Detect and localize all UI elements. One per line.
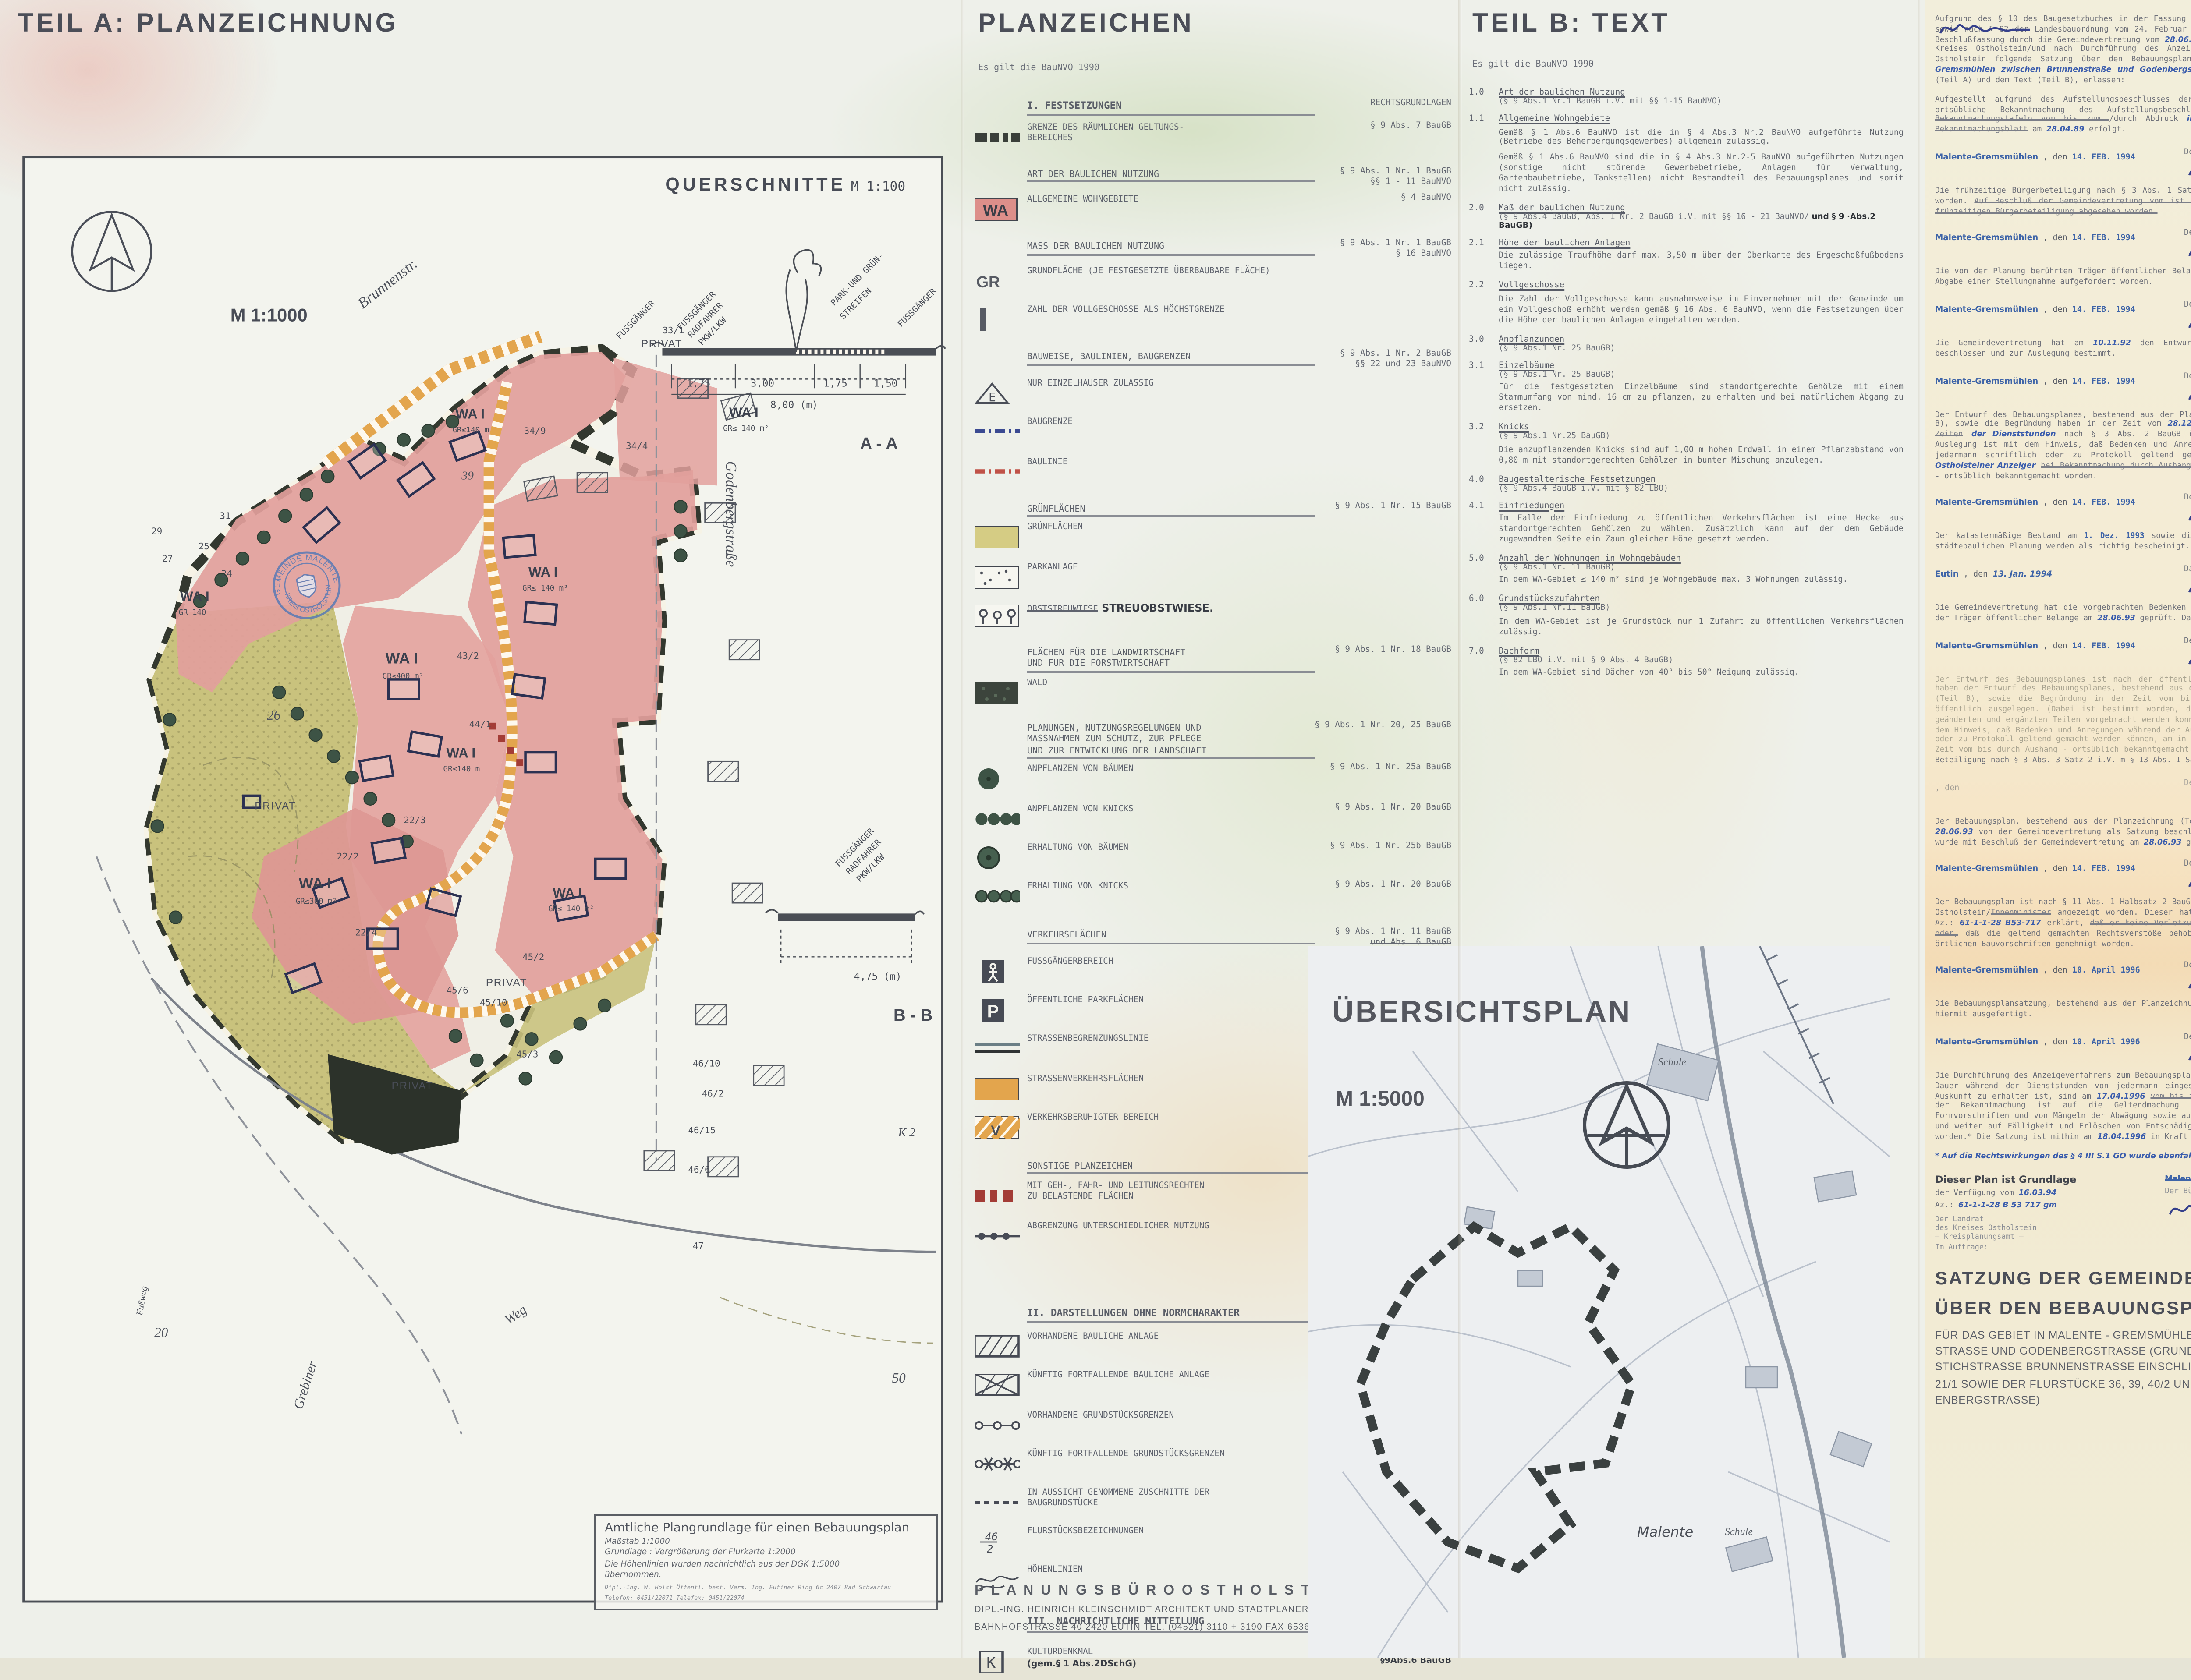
legal-reference: § 9 Abs. 1 Nr. 20 BauGB xyxy=(1315,881,1451,892)
text-section-3.1: 3.1Einzelbäume(§ 9 Abs.1 Nr. 25 BauGB)Fü… xyxy=(1469,362,1904,416)
section-heading: Einzelbäume xyxy=(1499,362,1904,371)
tree-symbol xyxy=(501,1015,514,1027)
section-heading: Höhe der baulichen Anlagen xyxy=(1499,240,1904,248)
legend-heading: FLÄCHEN FÜR DIE LANDWIRTSCHAFT UND FÜR D… xyxy=(975,646,1451,672)
rbldg-icon xyxy=(975,1374,1020,1397)
legend-label: BAUWEISE, BAULINIEN, BAUGRENZEN xyxy=(1027,351,1315,366)
baulinie-symbol xyxy=(975,456,1027,490)
municipal-seal-stamp: GEMEINDE MALENTE KREIS OSTHOLSTEIN xyxy=(265,544,348,627)
tree-symbol xyxy=(257,531,270,544)
park2-symbol: P xyxy=(975,996,1027,1029)
svg-text:46: 46 xyxy=(985,1531,998,1543)
building-envelope xyxy=(512,674,545,698)
legend-item: PARKANLAGE xyxy=(975,562,1451,595)
roman1-symbol xyxy=(975,305,1027,339)
signature xyxy=(2184,1043,2191,1067)
map-label: 22/2 xyxy=(337,851,359,862)
map-label: 25 xyxy=(199,541,209,552)
building-envelope xyxy=(372,838,405,863)
knick1-symbol xyxy=(975,804,1027,837)
legend-heading: I. FESTSETZUNGENRECHTSGRUNDLAGEN xyxy=(975,100,1451,117)
knick2-symbol xyxy=(975,881,1027,915)
ebldg-symbol xyxy=(975,1332,1027,1365)
text-section-5.0: 5.0Anzahl der Wohnungen in Wohngebäuden(… xyxy=(1469,555,1904,588)
place-date: Malente-Gremsmühlen , den 14. FEB. 1994 xyxy=(1935,861,2135,891)
official-title: Der Bürgermeister xyxy=(2184,963,2191,972)
legend-label: VORHANDENE BAULICHE ANLAGE xyxy=(1027,1332,1315,1344)
map-label: 43/2 xyxy=(457,651,479,661)
map-label: 20 xyxy=(154,1325,168,1340)
legend-label: SONSTIGE PLANZEICHEN xyxy=(1027,1160,1315,1175)
uebersichtsplan-panel: Schule Schule ÜBERSICHTSPLAN M 1:5000 Ma… xyxy=(1308,946,1890,1658)
legend-label: MIT GEH-, FAHR- UND LEITUNGSRECHTEN ZU B… xyxy=(1027,1182,1315,1205)
official-signature: Der Bürgermeister GEMEINDE MALENTE KREIS… xyxy=(2184,637,2191,667)
official-signature: Der Bürgermeister GEMEINDE MALENTE KREIS… xyxy=(2184,301,2191,331)
legend-label: STRASSENVERKEHRSFLÄCHEN xyxy=(1027,1073,1315,1086)
map-label: PRIVAT xyxy=(641,338,683,350)
trie-icon: E xyxy=(975,382,1020,405)
tree-symbol xyxy=(574,1017,586,1030)
official-signature: Der Bürgermeister GEMEINDE MALENTE KREIS… xyxy=(2184,1034,2191,1064)
vcalm-icon: V xyxy=(975,1116,1020,1139)
tree-symbol xyxy=(291,707,304,720)
wa-symbol: WA xyxy=(975,194,1027,227)
ped-symbol xyxy=(975,957,1027,990)
text-section-1.0: 1.0Art der baulichen Nutzung(§ 9 Abs.1 N… xyxy=(1469,89,1904,107)
vcalm-symbol: V xyxy=(975,1112,1027,1146)
signature-row: Malente-Gremsmühlen , den 14. FEB. 1994D… xyxy=(1935,149,2191,179)
legend-label: FLURSTÜCKSBEZEICHNUNGEN xyxy=(1027,1526,1315,1539)
tree-symbol xyxy=(327,750,340,763)
satzung-line1: SATZUNG DER GEMEINDE MALENTE xyxy=(1935,1266,2191,1294)
legal-reference: § 9 Abs. 1 Nr. 18 BauGB xyxy=(1315,646,1451,657)
tree-symbol xyxy=(422,424,434,437)
signature-row: Malente-Gremsmühlen , den 14. FEB. 1994D… xyxy=(1935,637,2191,667)
map-label: 26 xyxy=(267,707,281,723)
wald-icon xyxy=(975,682,1020,704)
map-label: GR 140 xyxy=(179,608,206,617)
map-label: 1,75 xyxy=(823,378,847,389)
official-title: Der Bürgermeister xyxy=(2184,149,2191,158)
official-signature: Der Bürgermeister GEMEINDE MALENTE KREIS… xyxy=(2184,861,2191,891)
legend-label: IN AUSSICHT GENOMMENE ZUSCHNITTE DER BAU… xyxy=(1027,1488,1315,1510)
map-label: PRIVAT xyxy=(255,800,296,812)
legend-label: II. DARSTELLUNGEN OHNE NORMCHARAKTER xyxy=(1027,1307,1315,1323)
plan-grundlage-note: Dieser Plan ist Grundlage xyxy=(1935,1175,2165,1185)
legend-label: GRENZE DES RÄUMLICHEN GELTUNGS- BEREICHE… xyxy=(1027,122,1315,145)
text-section-3.0: 3.0Anpflanzungen(§ 9 Abs.1 Nr. 25 BauGB) xyxy=(1469,336,1904,354)
tree-symbol xyxy=(674,500,687,513)
section-number: 3.0 xyxy=(1469,336,1499,354)
tree-symbol xyxy=(163,713,176,726)
section-heading: Einfriedungen xyxy=(1499,502,1904,511)
tree-symbol xyxy=(300,488,313,501)
tree2-icon xyxy=(975,846,1020,869)
legend-label: PARKANLAGE xyxy=(1027,562,1315,574)
legend-item: WAALLGEMEINE WOHNGEBIETE§ 4 BauNVO xyxy=(975,194,1451,227)
section-number: 3.1 xyxy=(1469,362,1499,416)
section-heading: Baugestalterische Festsetzungen xyxy=(1499,476,1904,485)
map-label: M 1:1000 xyxy=(230,304,308,325)
surveyor-line: Dipl.-Ing. W. Holst Öffentl. best. Verm.… xyxy=(605,1585,927,1592)
map-label: GR≤140 m xyxy=(443,765,480,774)
section-paragraph: In dem WA-Gebiet ≤ 140 m² sind je Wohnge… xyxy=(1499,577,1904,588)
legend-label: KULTURDENKMAL(gem.§ 1 Abs.2DSchG) xyxy=(1027,1647,1315,1670)
sline-symbol xyxy=(975,1034,1027,1068)
section-paragraph: Gemäß § 1 Abs.6 BauNVO ist die in § 4 Ab… xyxy=(1499,129,1904,150)
text-section-3.2: 3.2Knicks(§ 9 Abs.1 Nr.25 BauGB)Die anzu… xyxy=(1469,424,1904,467)
official-title: Der Bürgermeister xyxy=(2184,637,2191,646)
legend-item: ANPFLANZEN VON KNICKS§ 9 Abs. 1 Nr. 20 B… xyxy=(975,804,1451,837)
map-label: QUERSCHNITTE xyxy=(665,174,846,195)
map-label: 27 xyxy=(162,553,173,564)
baulinie-icon xyxy=(975,460,1020,483)
plangrundlage-title: Amtliche Plangrundlage für einen Bebauun… xyxy=(605,1521,927,1535)
map-label: Godenbergstraße xyxy=(723,461,740,567)
legend-label: I. FESTSETZUNGEN xyxy=(1027,100,1315,117)
map-label: 1,75 xyxy=(687,378,710,389)
park2-icon: P xyxy=(975,999,1020,1022)
map-label: WA I xyxy=(180,589,209,604)
official-signature: Der Bürgermeister GEMEINDE MALENTE KREIS… xyxy=(2184,149,2191,179)
section-paragraph: Die anzupflanzenden Knicks sind auf 1,00… xyxy=(1499,446,1904,467)
map-label: 1,50 xyxy=(874,378,897,389)
ped-icon xyxy=(975,960,1020,983)
official-title: Der Bürgermeister xyxy=(2184,373,2191,382)
satzung-title-block: SATZUNG DER GEMEINDE MALENTE ÜBER DEN BE… xyxy=(1935,1266,2191,1409)
legend-label: ERHALTUNG VON BÄUMEN xyxy=(1027,842,1315,855)
map-label: 46/10 xyxy=(693,1058,720,1068)
section-number: 1.1 xyxy=(1469,116,1499,196)
text-section-2.0: 2.0Maß der baulichen Nutzung(§ 9 Abs.4 B… xyxy=(1469,205,1904,231)
legend-item: BAUGRENZE xyxy=(975,417,1451,451)
signature xyxy=(2165,1196,2191,1220)
legend-label: ABGRENZUNG UNTERSCHIEDLICHER NUTZUNG xyxy=(1027,1221,1315,1233)
section-paragraph: Gemäß § 1 Abs.6 BauNVO sind die in § 4 A… xyxy=(1499,154,1904,196)
baunvo-note: Es gilt die BauNVO 1990 xyxy=(978,63,1099,74)
place-date: , den xyxy=(1935,780,1959,810)
kbox-symbol: K xyxy=(975,1647,1027,1680)
map-label: WA I xyxy=(386,650,418,667)
section-reference: (§ 9 Abs.1 Nr.11 BauGB) xyxy=(1499,605,1904,614)
svg-text:WA: WA xyxy=(983,201,1008,219)
tree-symbol xyxy=(550,1051,562,1064)
procedural-paragraph: Die Bebauungsplansatzung, bestehend aus … xyxy=(1935,1001,2191,1022)
tree-symbol xyxy=(236,552,249,565)
office-name: P L A N U N G S B Ü R O O S T H O L S T … xyxy=(975,1582,1357,1598)
legend-item: WALD xyxy=(975,678,1451,711)
legend-item: ANPFLANZEN VON BÄUMEN§ 9 Abs. 1 Nr. 25a … xyxy=(975,765,1451,798)
map-label: 8,00 (m) xyxy=(770,399,818,410)
uebersichtsplan-scale: M 1:5000 xyxy=(1336,1086,1425,1111)
procedural-paragraph: Der Entwurf des Bebauungsplanes, bestehe… xyxy=(1935,411,2191,483)
plan-map-drawing: M 1:1000QUERSCHNITTEM 1:100FUSSGÄNGERFUS… xyxy=(5,147,948,1619)
office-address: BAHNHOFSTRASSE 40 2420 EUTIN TEL. (04521… xyxy=(975,1623,1357,1633)
legend-item: ERHALTUNG VON KNICKS§ 9 Abs. 1 Nr. 20 Ba… xyxy=(975,881,1451,915)
rbldg-symbol xyxy=(975,1371,1027,1404)
legend-item: GRGRUNDFLÄCHE (JE FESTGESETZTE ÜBERBAUBA… xyxy=(975,266,1451,300)
section-reference: (§ 9 Abs.1 Nr.1 BauGB i.V. mit §§ 1-15 B… xyxy=(1499,98,1904,107)
tree-symbol xyxy=(525,1033,538,1045)
existing-building xyxy=(729,640,759,660)
map-label: 34/9 xyxy=(524,425,546,436)
map-label: GR≤ 140 m² xyxy=(548,905,594,913)
legend-label: ZAHL DER VOLLGESCHOSSE ALS HÖCHSTGRENZE xyxy=(1027,305,1315,318)
legend-heading: ART DER BAULICHEN NUTZUNG§ 9 Abs. 1 Nr. … xyxy=(975,168,1451,189)
map-label: M 1:100 xyxy=(851,179,905,194)
section-heading: Vollgeschosse xyxy=(1499,283,1904,291)
town-label: Malente xyxy=(1637,1524,1693,1540)
legal-reference: § 9 Abs. 1 Nr. 25b BauGB xyxy=(1315,842,1451,853)
legal-reference: § 4 BauNVO xyxy=(1315,194,1451,205)
map-label: 24 xyxy=(221,569,232,579)
roman1-icon xyxy=(975,309,1020,332)
map-label: 4,75 (m) xyxy=(854,971,902,982)
section-heading: Allgemeine Wohngebiete xyxy=(1499,116,1904,124)
wald-symbol xyxy=(975,678,1027,711)
teil-b-title: TEIL B: TEXT xyxy=(1472,9,1670,39)
map-label: 33/1 xyxy=(662,325,684,336)
signature-row: Malente-Gremsmühlen , den 14. FEB. 1994D… xyxy=(1935,230,2191,260)
section-reference: (§ 9 Abs.4 BauGB i.V. mit § 82 LBO) xyxy=(1499,485,1904,493)
section-reference: (§ 9 Abs.4 BauGB, Abs. 1 Nr. 2 BauGB i.V… xyxy=(1499,213,1904,231)
rights-symbol xyxy=(975,1182,1027,1215)
legend-label: FLÄCHEN FÜR DIE LANDWIRTSCHAFT UND FÜR D… xyxy=(1027,646,1315,672)
svg-text:Schule: Schule xyxy=(1725,1526,1753,1538)
place-date: Malente-Gremsmühlen , den 14. FEB. 1994 xyxy=(1935,637,2135,667)
map-label: WA I xyxy=(729,405,758,420)
legend-label: GRUNDFLÄCHE (JE FESTGESETZTE ÜBERBAUBARE… xyxy=(1027,266,1315,279)
section-number: 4.1 xyxy=(1469,502,1499,547)
tree1-icon xyxy=(975,768,1020,791)
legend-item: BAULINIE xyxy=(975,456,1451,490)
map-label: 45/3 xyxy=(516,1049,538,1059)
fold-crease xyxy=(1918,0,1921,1658)
legal-reference: § 9 Abs. 7 BauGB xyxy=(1315,122,1451,133)
place-date: Malente-Gremsmühlen , den 10. April 1996 xyxy=(1935,963,2140,993)
procedural-paragraph: Die Gemeindevertretung hat am 10.11.92 d… xyxy=(1935,340,2191,361)
landrat-block: Dieser Plan ist Grundlage der Verfügung … xyxy=(1935,1175,2191,1252)
existing-building xyxy=(708,761,738,781)
signature xyxy=(2184,503,2191,528)
legend-item: OBSTSTREUWIESE STREUOBSTWIESE. xyxy=(975,601,1451,634)
map-label: GR≤300 m² xyxy=(296,897,337,906)
park-symbol xyxy=(975,562,1027,595)
signature xyxy=(1935,16,2037,40)
tree-symbol xyxy=(382,813,395,826)
section-heading: Knicks xyxy=(1499,424,1904,433)
procedural-paragraph: Der Entwurf des Bebauungsplanes ist nach… xyxy=(1935,676,2191,767)
map-label: GR≤400 m² xyxy=(383,672,424,681)
text-section-7.0: 7.0Dachform(§ 82 LBO i.V. mit § 9 Abs. 4… xyxy=(1469,648,1904,680)
signature xyxy=(2184,575,2191,599)
existing-building xyxy=(708,1157,738,1177)
municipal-seal-stamp: GEMEINDE MALENTE KREIS OSTHOLSTEIN xyxy=(265,544,348,627)
building-envelope xyxy=(503,535,535,558)
pline-symbol xyxy=(975,1410,1027,1443)
map-label: 39 xyxy=(461,469,474,482)
teil-a-title: TEIL A: PLANZEICHNUNG xyxy=(18,9,398,39)
legal-reference: § 9 Abs. 1 Nr. 2 BauGB §§ 22 und 23 BauN… xyxy=(1315,351,1451,372)
tree-symbol xyxy=(449,1029,462,1042)
section-number: 4.0 xyxy=(1469,476,1499,493)
tree-symbol xyxy=(519,1072,532,1085)
procedural-paragraph: Die Durchführung des Anzeigeverfahrens z… xyxy=(1935,1072,2191,1144)
signature-row: Malente-Gremsmühlen , den 14. FEB. 1994D… xyxy=(1935,301,2191,331)
fold-crease xyxy=(961,0,964,1658)
tree-symbol xyxy=(674,525,687,538)
procedural-paragraph: Die frühzeitige Bürgerbeteiligung nach §… xyxy=(1935,187,2191,218)
signature xyxy=(2184,382,2191,406)
tree-symbol xyxy=(151,820,164,832)
text-section-4.1: 4.1EinfriedungenIm Falle der Einfriedung… xyxy=(1469,502,1904,547)
knick1-icon xyxy=(975,807,1020,830)
map-label: 45/6 xyxy=(447,985,468,996)
map-label: WA I xyxy=(447,746,475,761)
map-label: WA I xyxy=(455,407,484,422)
existing-building xyxy=(644,1151,674,1171)
signature-row: Malente-Gremsmühlen , den 14. FEB. 1994D… xyxy=(1935,861,2191,891)
signature-row: Malente-Gremsmühlen , den 14. FEB. 1994D… xyxy=(1935,373,2191,403)
place-date: Malente-Gremsmühlen , den 14. FEB. 1994 xyxy=(1935,230,2135,260)
official-signature: Der Bürgermeister GEMEINDE MALENTE KREIS… xyxy=(2184,963,2191,993)
place-stamp: Malente-Gremsmühlen xyxy=(2165,1175,2191,1184)
plan-map: M 1:1000QUERSCHNITTEM 1:100FUSSGÄNGERFUS… xyxy=(5,147,948,1619)
svg-text:V: V xyxy=(991,1122,1000,1138)
fno-symbol: 462 xyxy=(975,1526,1027,1560)
section-heading: Grundstückszufahrten xyxy=(1499,597,1904,605)
map-label: 29 xyxy=(151,526,162,536)
map-label: 46/15 xyxy=(688,1125,716,1135)
official-signature: Der Bürgermeister GEMEINDE MALENTE KREIS… xyxy=(2184,230,2191,260)
map-label: K 2 xyxy=(897,1126,915,1139)
procedural-notes: Aufgrund des § 10 des Baugesetzbuches in… xyxy=(1935,7,2191,1409)
legend-label: KÜNFTIG FORTFALLENDE GRUNDSTÜCKSGRENZEN xyxy=(1027,1449,1315,1461)
map-label: 31 xyxy=(220,511,230,521)
existing-building xyxy=(754,1066,784,1086)
boundary-symbol xyxy=(975,122,1027,156)
signature-row: Malente-Gremsmühlen , den 10. April 1996… xyxy=(1935,963,2191,993)
plinex-icon xyxy=(975,1452,1020,1475)
section-heading: Maß der baulichen Nutzung xyxy=(1499,205,1904,213)
legend-label: STRASSENBEGRENZUNGSLINIE xyxy=(1027,1034,1315,1047)
satzung-line2: ÜBER DEN BEBAUUNGSPLAN NR. 53 xyxy=(1935,1294,2191,1323)
official-signature: Der Bürgermeister GEMEINDE MALENTE KREIS… xyxy=(2184,373,2191,403)
park-icon xyxy=(975,566,1020,588)
existing-building xyxy=(696,1005,726,1025)
official-title: Das Katasteramt xyxy=(2184,566,2191,575)
section-paragraph: Die zulässige Traufhöhe darf max. 3,50 m… xyxy=(1499,253,1904,274)
tree-symbol xyxy=(364,792,376,805)
dash-symbol xyxy=(975,1488,1027,1521)
building-envelope xyxy=(525,602,557,624)
legal-reference: RECHTSGRUNDLAGEN xyxy=(1315,100,1451,110)
trie-symbol: E xyxy=(975,379,1027,412)
legend-label: KÜNFTIG FORTFALLENDE BAULICHE ANLAGE xyxy=(1027,1371,1315,1383)
plan-sheet: TEIL A: PLANZEICHNUNG xyxy=(0,0,2191,1658)
legend-label: ÖFFENTLICHE PARKFLÄCHEN xyxy=(1027,996,1315,1008)
section-heading: Anzahl der Wohnungen in Wohngebäuden xyxy=(1499,555,1904,564)
place-date: Eutin , den 13. Jan. 1994 xyxy=(1935,566,2052,596)
tree-symbol xyxy=(169,911,182,924)
legend-label: FUSSGÄNGERBEREICH xyxy=(1027,957,1315,969)
signature-row: Malente-Gremsmühlen , den 10. April 1996… xyxy=(1935,1034,2191,1064)
signature xyxy=(2184,646,2191,670)
wa-icon: WA xyxy=(975,198,1020,220)
map-label: GR≤140 m xyxy=(452,426,489,435)
place-date: Malente-Gremsmühlen , den 14. FEB. 1994 xyxy=(1935,149,2135,179)
map-label: PRIVAT xyxy=(486,976,528,988)
legend-label: ANPFLANZEN VON KNICKS xyxy=(1027,804,1315,816)
svg-text:E: E xyxy=(989,390,996,405)
baugrenze-symbol xyxy=(975,417,1027,451)
tree-symbol xyxy=(674,549,687,562)
procedural-paragraph: Der Bebauungsplan ist nach § 11 Abs. 1 H… xyxy=(1935,899,2191,950)
legend-item: ENUR EINZELHÄUSER ZULÄSSIG xyxy=(975,379,1451,412)
plangrundlage-line: Grundlage : Vergrößerung der Flurkarte 1… xyxy=(605,1549,927,1558)
kbox-icon: K xyxy=(975,1650,1020,1673)
map-label: PRIVAT xyxy=(392,1080,433,1092)
legal-reference: § 9 Abs. 1 Nr. 15 BauGB xyxy=(1315,502,1451,513)
svg-text:2: 2 xyxy=(987,1543,993,1553)
map-label: 34/4 xyxy=(626,441,648,451)
az-line: Az.: 61-1-1-28 B 53 717 gm xyxy=(1935,1201,2165,1210)
text-section-4.0: 4.0Baugestalterische Festsetzungen(§ 9 A… xyxy=(1469,476,1904,493)
dash-icon xyxy=(975,1491,1020,1514)
official-title: Der Bürgermeister xyxy=(2184,780,2191,789)
legend-label: ALLGEMEINE WOHNGEBIETE xyxy=(1027,194,1315,206)
surveyor-line: Telefon: 0451/22071 Telefax: 0451/22074 xyxy=(605,1595,927,1602)
ebldg-icon xyxy=(975,1336,1020,1358)
legal-reference: § 9 Abs. 1 Nr. 20, 25 BauGB xyxy=(1315,722,1451,732)
map-label: 22/3 xyxy=(404,815,425,825)
planning-office-footer: P L A N U N G S B Ü R O O S T H O L S T … xyxy=(975,1582,1357,1633)
legend-item: ZAHL DER VOLLGESCHOSSE ALS HÖCHSTGRENZE xyxy=(975,305,1451,339)
signature xyxy=(2184,158,2191,182)
verfuegung-line: der Verfügung vom 16.03.94 xyxy=(1935,1189,2165,1198)
signature xyxy=(2184,870,2191,894)
procedural-paragraph: Aufgestellt aufgrund des Aufstellungsbes… xyxy=(1935,96,2191,137)
plangrundlage-line: übernommen. xyxy=(605,1573,927,1581)
official-signature: Der Bürgermeister GEMEINDE MALENTE KREIS… xyxy=(2184,495,2191,524)
tree-symbol xyxy=(321,470,334,483)
section-heading: Art der baulichen Nutzung xyxy=(1499,89,1904,98)
svg-text:P: P xyxy=(987,1002,999,1022)
legend-heading: MASS DER BAULICHEN NUTZUNG§ 9 Abs. 1 Nr.… xyxy=(975,240,1451,261)
section-paragraph: Für die festgesetzten Einzelbäume sind s… xyxy=(1499,384,1904,416)
section-number: 2.0 xyxy=(1469,205,1499,231)
section-heading: Anpflanzungen xyxy=(1499,336,1904,345)
official-title: Der Bürgermeister xyxy=(2184,861,2191,870)
map-label: A - A xyxy=(860,434,898,453)
building-envelope xyxy=(525,752,556,772)
gr-symbol: GR xyxy=(975,266,1027,300)
legal-reference: § 9 Abs. 1 Nr. 1 BauGB § 16 BauNVO xyxy=(1315,240,1451,261)
legend-label: NUR EINZELHÄUSER ZULÄSSIG xyxy=(1027,379,1315,391)
section-paragraph: In dem WA-Gebiet ist je Grundstück nur 1… xyxy=(1499,619,1904,640)
tree1-symbol xyxy=(975,765,1027,798)
section-number: 6.0 xyxy=(1469,597,1499,640)
satzung-body: FÜR DAS GEBIET IN MALENTE - GREMSMÜHLEN … xyxy=(1935,1328,2191,1409)
boundary-icon xyxy=(975,126,1020,149)
signature-row: Malente-Gremsmühlen , den 14. FEB. 1994D… xyxy=(1935,495,2191,524)
tree-symbol xyxy=(598,999,611,1012)
uebersichtsplan-map: Schule Schule xyxy=(1308,946,1890,1658)
fno-icon: 462 xyxy=(975,1530,1020,1553)
existing-building xyxy=(732,883,762,903)
legend-label: VORHANDENE GRUNDSTÜCKSGRENZEN xyxy=(1027,1410,1315,1422)
legal-reference: § 9 Abs. 1 Nr. 1 BauGB §§ 1 - 11 BauNVO xyxy=(1315,168,1451,189)
